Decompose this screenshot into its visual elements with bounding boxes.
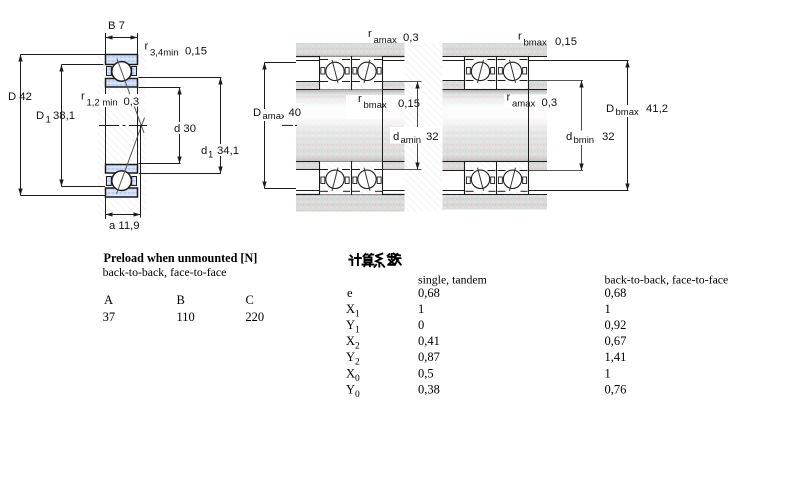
svg-text:r: r — [368, 28, 372, 40]
svg-text:1: 1 — [208, 150, 213, 161]
svg-text:B 7: B 7 — [108, 20, 125, 32]
svg-text:2: 2 — [355, 342, 360, 352]
svg-text:0,3: 0,3 — [124, 96, 140, 108]
svg-text:Preload when unmounted [N]: Preload when unmounted [N] — [104, 251, 258, 265]
svg-text:0,67: 0,67 — [605, 334, 627, 348]
svg-text:0,92: 0,92 — [605, 318, 627, 332]
svg-text:0,3: 0,3 — [542, 97, 558, 109]
svg-text:0,3: 0,3 — [403, 32, 419, 44]
svg-text:B: B — [177, 293, 185, 307]
svg-text:D: D — [606, 103, 614, 115]
svg-text:r: r — [507, 92, 511, 104]
svg-text:Y: Y — [346, 318, 355, 332]
svg-text:0,87: 0,87 — [418, 350, 440, 364]
svg-text:40: 40 — [289, 107, 302, 119]
svg-text:X: X — [346, 366, 355, 380]
svg-text:X: X — [346, 302, 355, 316]
svg-text:bmax: bmax — [524, 38, 547, 49]
svg-text:1: 1 — [355, 310, 360, 320]
svg-text:D 42: D 42 — [8, 91, 32, 103]
svg-text:0,15: 0,15 — [555, 36, 577, 48]
svg-text:amax: amax — [512, 99, 535, 110]
svg-text:1,2 min: 1,2 min — [87, 98, 118, 109]
svg-text:d: d — [201, 145, 207, 157]
svg-text:0,15: 0,15 — [185, 46, 207, 58]
svg-text:0: 0 — [355, 374, 360, 384]
svg-text:d 30: d 30 — [174, 123, 196, 135]
svg-text:41,2: 41,2 — [646, 103, 668, 115]
svg-text:Y: Y — [346, 383, 355, 397]
svg-text:34,1: 34,1 — [217, 145, 239, 157]
svg-text:Y: Y — [346, 350, 355, 364]
svg-text:1: 1 — [418, 302, 424, 316]
svg-text:1,41: 1,41 — [605, 350, 627, 364]
svg-text:back-to-back, face-to-face: back-to-back, face-to-face — [605, 273, 729, 287]
svg-text:C: C — [246, 293, 254, 307]
svg-text:0: 0 — [355, 390, 360, 400]
svg-text:back-to-back, face-to-face: back-to-back, face-to-face — [103, 265, 227, 279]
svg-text:bmax: bmax — [364, 100, 387, 111]
svg-text:0,5: 0,5 — [418, 366, 434, 380]
svg-text:bmin: bmin — [574, 135, 595, 146]
svg-text:0,41: 0,41 — [418, 334, 440, 348]
svg-text:bmax: bmax — [616, 107, 639, 118]
svg-text:1: 1 — [46, 115, 51, 126]
svg-text:0,68: 0,68 — [605, 286, 627, 300]
svg-text:32: 32 — [602, 131, 615, 143]
svg-text:amax: amax — [263, 111, 286, 122]
svg-text:0,68: 0,68 — [418, 286, 440, 300]
svg-text:A: A — [104, 293, 113, 307]
svg-text:1: 1 — [605, 302, 611, 316]
svg-text:d: d — [393, 131, 399, 143]
svg-text:0,76: 0,76 — [605, 383, 627, 397]
svg-text:r: r — [518, 31, 522, 43]
svg-text:single, tandem: single, tandem — [418, 273, 487, 287]
svg-text:0,15: 0,15 — [398, 98, 420, 110]
svg-text:2: 2 — [355, 358, 360, 368]
svg-text:37: 37 — [103, 310, 116, 324]
svg-text:32: 32 — [426, 131, 439, 143]
svg-text:0,38: 0,38 — [418, 383, 440, 397]
svg-text:r: r — [358, 93, 362, 105]
svg-text:110: 110 — [177, 310, 195, 324]
svg-text:38,1: 38,1 — [53, 110, 75, 122]
svg-text:amin: amin — [401, 135, 422, 146]
svg-text:X: X — [346, 334, 355, 348]
svg-text:e: e — [347, 286, 353, 300]
svg-text:r: r — [145, 41, 149, 53]
svg-text:amax: amax — [374, 35, 397, 46]
svg-text:1: 1 — [355, 326, 360, 336]
svg-text:r: r — [81, 91, 85, 103]
svg-text:220: 220 — [245, 310, 264, 324]
svg-text:0: 0 — [418, 318, 424, 332]
svg-text:1: 1 — [605, 366, 611, 380]
svg-text:d: d — [566, 131, 572, 143]
svg-text:3,4min: 3,4min — [150, 48, 179, 59]
svg-text:a 11,9: a 11,9 — [109, 220, 140, 232]
svg-text:D: D — [253, 107, 261, 119]
svg-text:D: D — [36, 110, 44, 122]
